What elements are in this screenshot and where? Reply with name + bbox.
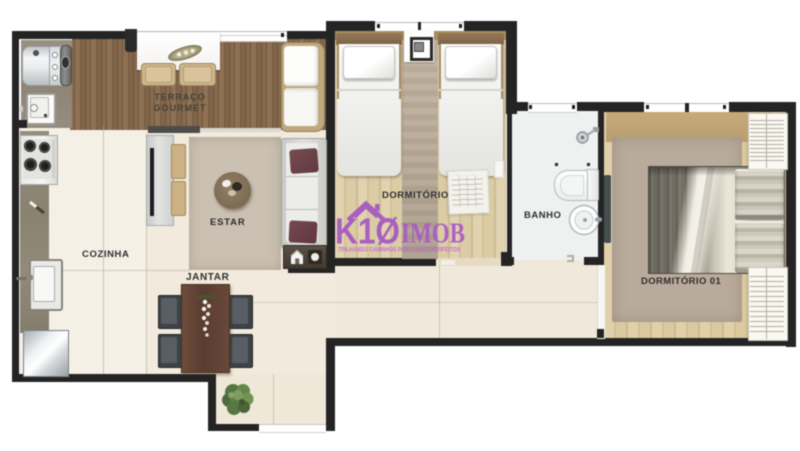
svg-text:K1Ø: K1Ø xyxy=(335,211,400,252)
svg-text:IMOB: IMOB xyxy=(401,219,465,250)
svg-text:TRILHANDO CAMINHOS PARA LARES: TRILHANDO CAMINHOS PARA LARES PERFEITOS xyxy=(338,247,461,254)
